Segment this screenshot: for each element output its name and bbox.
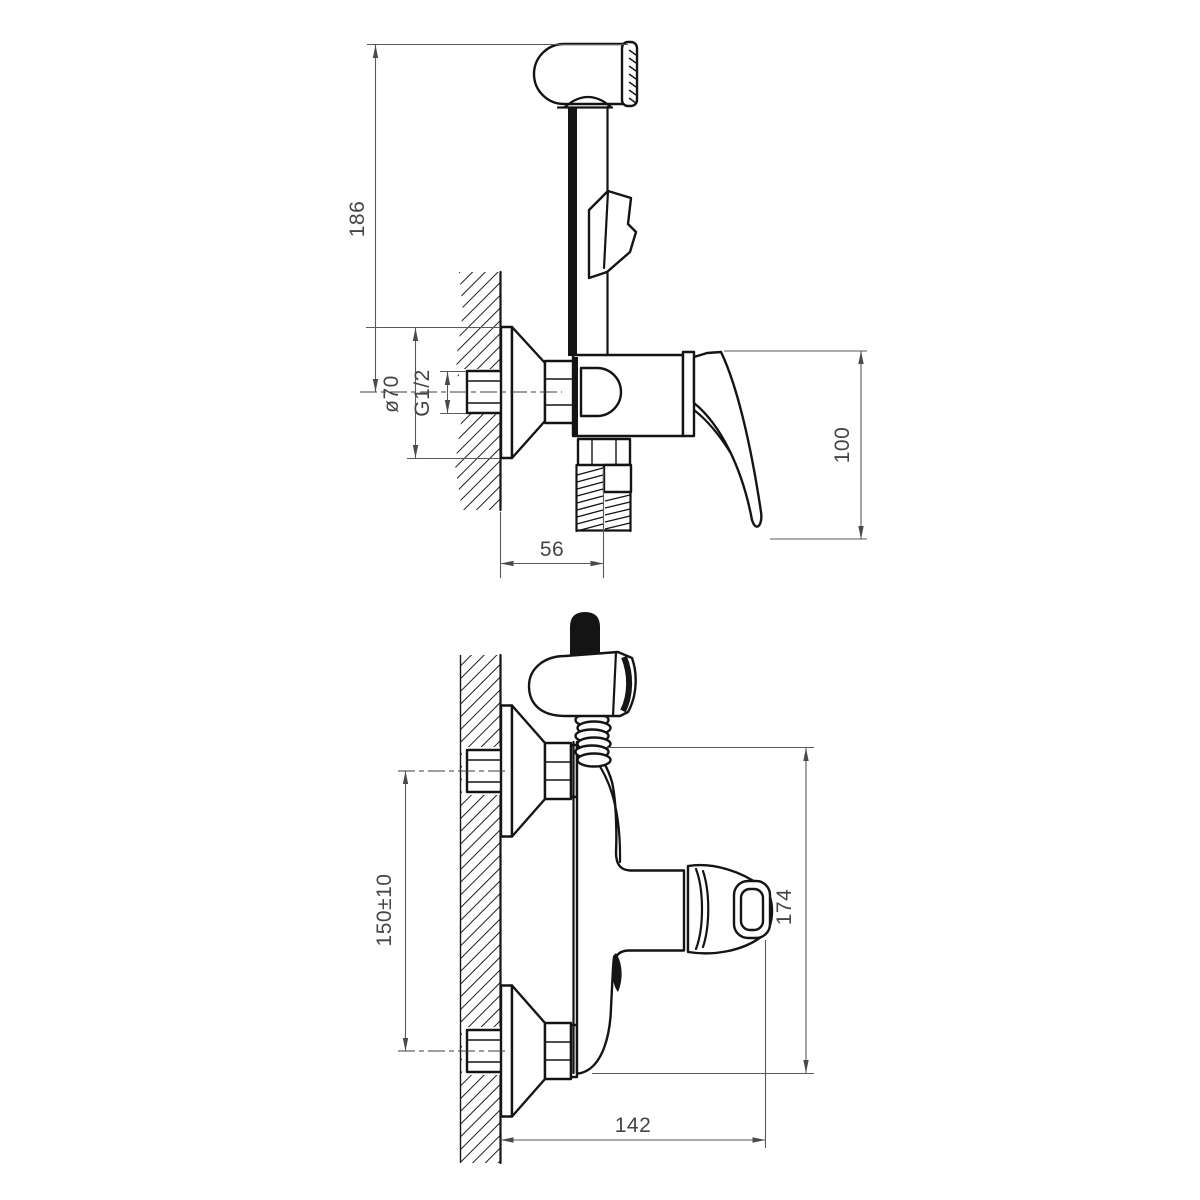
mixer-handle-front [688,865,772,953]
hand-shower-side [534,42,637,356]
dim-label-100: 100 [831,427,854,464]
dim-label-g12: G1/2 [411,369,434,417]
drawing-canvas: 186 ø70 G1/2 100 [0,0,1200,1200]
hand-shower-front [529,612,636,716]
shower-hose-bar [568,108,577,356]
front-view: 150±10 174 142 [373,612,814,1163]
technical-drawing: 186 ø70 G1/2 100 [0,0,1200,1200]
dim-label-174: 174 [773,889,796,926]
dim-label-150: 150±10 [373,874,396,947]
shower-clip [589,191,636,278]
dim-label-dia70: ø70 [380,375,403,413]
dimension-56: 56 [501,468,604,578]
mixer-body-front [574,742,685,1074]
dim-label-142: 142 [615,1114,652,1137]
shower-head-front [529,652,636,716]
side-view: 186 ø70 G1/2 100 [346,42,867,578]
wall-section-front [460,655,501,1163]
dimension-g12: G1/2 [411,369,466,417]
mixer-body-side [572,355,683,436]
hose-coil-front [576,714,611,767]
shower-grip-end [570,612,600,658]
dim-label-186: 186 [346,201,369,238]
shower-head [534,44,624,104]
dim-label-56: 56 [540,538,564,561]
shower-holder-bracket [581,368,621,416]
shower-hose-end [612,953,622,992]
mixer-lever-handle-side [683,352,761,527]
